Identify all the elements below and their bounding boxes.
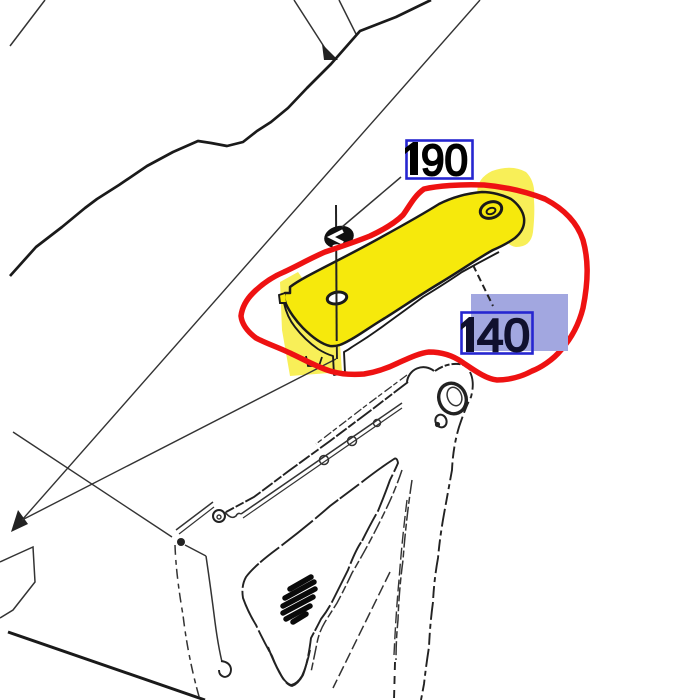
svg-text:90: 90 xyxy=(421,136,468,185)
svg-text:40: 40 xyxy=(477,309,530,361)
